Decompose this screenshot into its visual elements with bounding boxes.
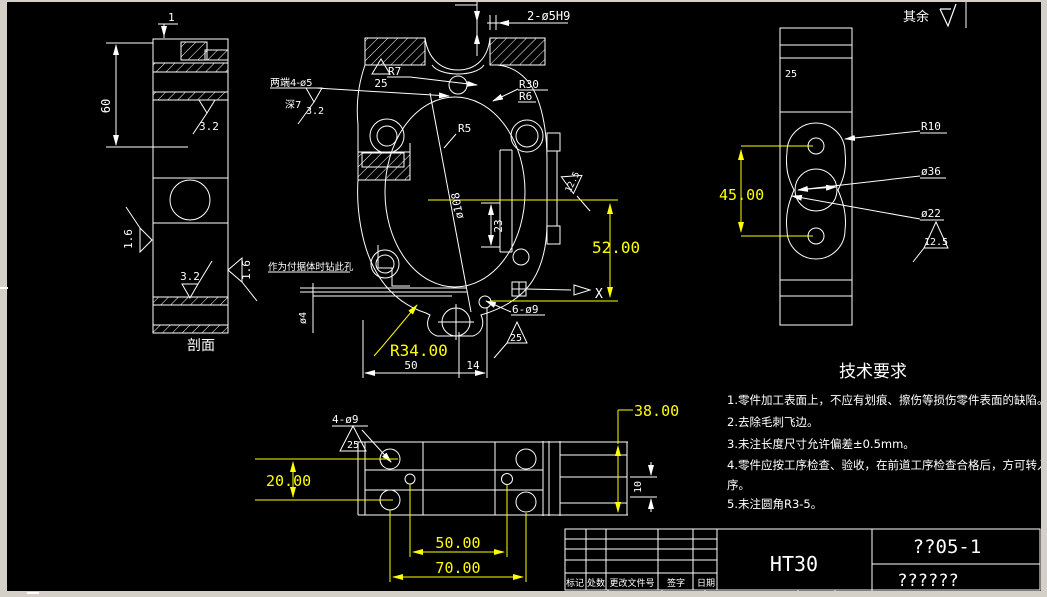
title-col-label-changefile: 更改文件号: [609, 577, 654, 589]
left-roughness-top: 3.2: [199, 120, 219, 133]
bottom-dim-70: 70.00: [435, 559, 480, 577]
main-dim-14: 14: [466, 359, 480, 372]
left-dim-1: 1: [168, 11, 175, 24]
tech-req-line: 2.去除毛刺飞边。: [727, 415, 818, 429]
title-col-label-date: 日期: [697, 578, 715, 589]
bottom-edge-tick: [27, 592, 39, 594]
main-slot-note: 两端4-ø5: [270, 76, 312, 89]
main-slot-depth: 深7: [285, 99, 301, 111]
bottom-dim-38: 38.00: [634, 402, 679, 420]
right-r10: R10: [921, 120, 941, 133]
bottom-holes: 4-ø9: [332, 413, 359, 426]
main-holes-top: 2-ø5H9: [527, 9, 570, 23]
right-dia-22: ø22: [921, 207, 941, 220]
tech-req-line: 序。: [727, 478, 750, 492]
main-roughness-25b: 25: [510, 333, 522, 344]
tech-req-line: 1.零件加工表面上，不应有划痕、擦伤等损伤零件表面的缺陷。: [727, 393, 1047, 407]
left-edge-tick: [0, 287, 8, 289]
left-roughness-left: 1.6: [122, 229, 135, 249]
bottom-roughness-25: 25: [347, 440, 359, 451]
title-drawing-code: ??05-1: [913, 536, 982, 558]
right-dim-45: 45.00: [719, 186, 764, 204]
tech-requirements-title: 技术要求: [839, 362, 907, 382]
main-r6: R6: [519, 90, 532, 103]
title-drawing-name: ??????: [897, 571, 958, 591]
left-roughness-bottom: 3.2: [180, 270, 200, 283]
main-dim-50: 50: [404, 359, 417, 372]
title-col-label-mark: 标记: [566, 577, 584, 589]
right-dia-36: ø36: [921, 165, 941, 178]
tech-req-line: 3.未注长度尺寸允许偏差±0.5mm。: [727, 437, 915, 451]
right-dim-25: 25: [785, 69, 797, 80]
left-view-caption: 剖面: [187, 338, 215, 354]
surface-note-label: 其余: [903, 9, 929, 25]
main-r34: R34.00: [390, 341, 448, 360]
main-slot-roughness: 3.2: [306, 106, 324, 117]
main-roughness-25: 25: [374, 77, 387, 90]
title-col-label-signature: 签字: [667, 577, 685, 589]
main-datum-x: X: [595, 287, 603, 302]
bottom-dim-20: 20.00: [266, 472, 311, 490]
main-dia-4: ø4: [298, 312, 309, 324]
title-material: HT30: [770, 552, 818, 576]
bottom-dim-50: 50.00: [435, 534, 480, 552]
left-roughness-right: 1.6: [240, 260, 253, 280]
tech-req-line: 4.零件应按工序检查、验收，在前道工序检查合格后，方可转入下道工: [727, 458, 1047, 472]
cad-application-window: 1 60 3.2 1.6 1.6 3.2 剖面: [0, 0, 1047, 597]
title-col-label-count: 处数: [587, 577, 605, 589]
bottom-dim-10: 10: [633, 481, 644, 493]
right-roughness-125: 12.5: [924, 237, 948, 248]
main-r7: R7: [388, 65, 401, 78]
tech-req-line: 5.未注圆角R3-5。: [727, 497, 822, 511]
main-dim-52: 52.00: [592, 238, 640, 257]
main-dim-23: 23: [492, 219, 505, 232]
main-holes-bottom: 6-ø9: [512, 303, 539, 316]
main-r5: R5: [458, 122, 471, 135]
main-drill-note: 作为付据体时钻此孔: [268, 261, 354, 273]
left-dim-60: 60: [99, 99, 113, 113]
cad-drawing-canvas[interactable]: 1 60 3.2 1.6 1.6 3.2 剖面: [0, 0, 1047, 597]
